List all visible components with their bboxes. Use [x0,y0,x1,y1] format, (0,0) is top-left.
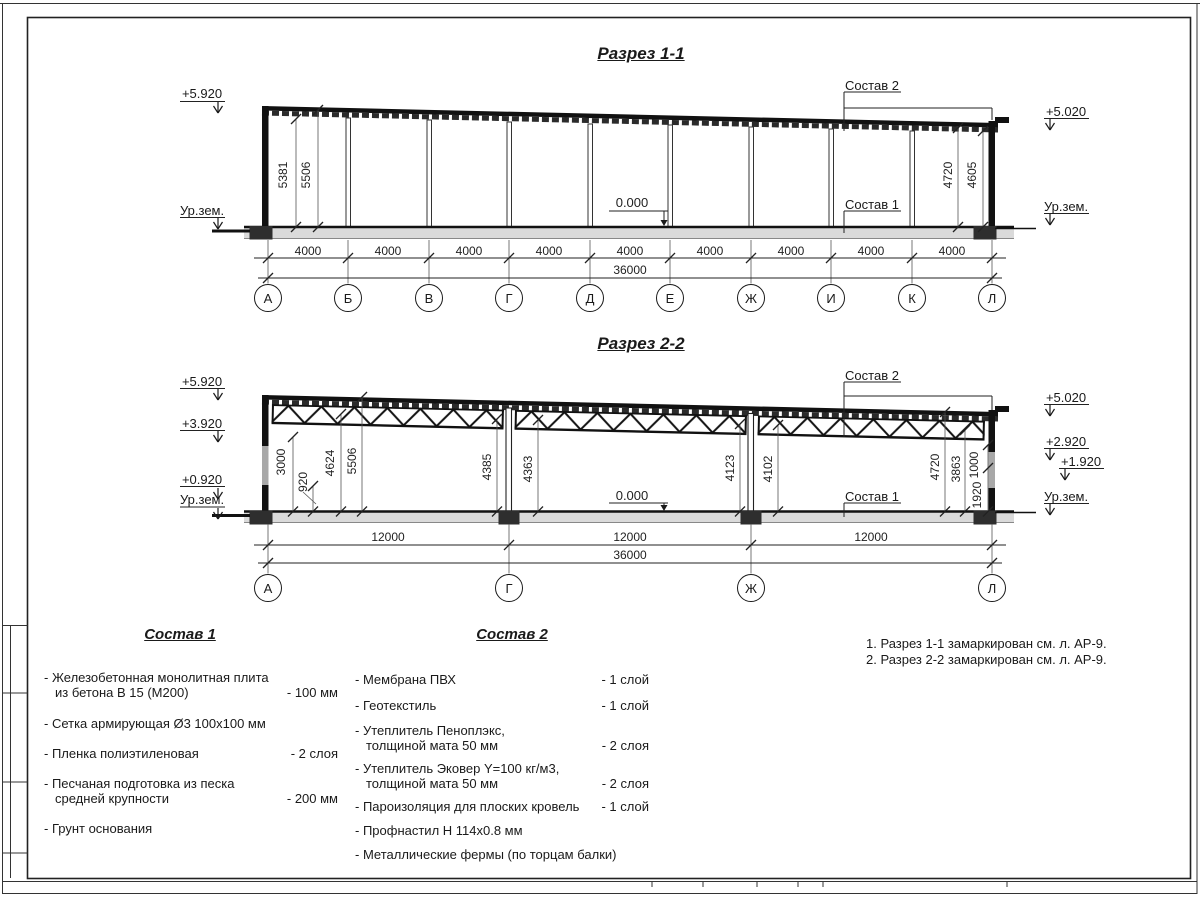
drawing-sheet: Разрез 1-1 +5.920 Ур.зем. +5.020 Ур.зем.… [0,0,1200,900]
vertical-dim: 4385 [480,427,494,507]
bay-dim: 4000 [439,244,499,258]
zero-level-mark: 0.000 [602,195,662,210]
bay-dim: 4000 [841,244,901,258]
vertical-dim: 5381 [276,135,290,215]
vertical-dim: 4720 [928,427,942,507]
axis-bubble: Е [656,284,684,312]
axis-bubble: Ж [737,574,765,602]
item-qty: - 1 слой [601,799,649,814]
item-text: - Утеплитель Пеноплэкс, толщиной мата 50… [355,723,505,753]
item-text: - Грунт основания [44,821,152,836]
elevation-mark: +5.920 [180,86,224,101]
item-text: - Железобетонная монолитная плита из бет… [44,670,269,700]
truss-1 [272,404,504,428]
item-text: - Пленка полиэтиленовая [44,746,199,761]
elevation-mark: +0.920 [180,472,224,487]
composition1-item: - Пленка полиэтиленовая - 2 слоя [44,746,338,761]
composition1-item: - Грунт основания [44,821,338,836]
item-qty: - 2 слоя [602,738,649,753]
bay-dim: 4000 [519,244,579,258]
callout-sostav1: Состав 1 [837,197,907,212]
composition2-item: - Геотекстиль - 1 слой [355,698,649,713]
composition2-item: - Утеплитель Пеноплэкс, толщиной мата 50… [355,723,649,753]
vertical-dim: 4624 [323,423,337,503]
composition1-item: - Песчаная подготовка из песка средней к… [44,776,338,806]
bay-dim: 12000 [590,530,670,544]
vertical-dim: 3863 [949,429,963,509]
composition1-item: - Железобетонная монолитная плита из бет… [44,670,338,700]
item-text: - Песчаная подготовка из песка средней к… [44,776,234,806]
callout-sostav2: Состав 2 [837,78,907,93]
axis-bubble: А [254,284,282,312]
bay-dim: 4000 [922,244,982,258]
axis-bubble: Г [495,574,523,602]
note-line: 1. Разрез 1-1 замаркирован см. л. АР-9. [866,636,1107,652]
vertical-dim: 4363 [521,429,535,509]
axis-bubble: А [254,574,282,602]
note-line: 2. Разрез 2-2 замаркирован см. л. АР-9. [866,652,1107,668]
vertical-dim: 4720 [941,135,955,215]
vertical-dim: 3000 [274,422,288,502]
vertical-dim: 4123 [723,428,737,508]
bay-dim: 4000 [680,244,740,258]
section2-title: Разрез 2-2 [561,334,721,354]
total-dim: 36000 [600,263,660,277]
callout-sostav1: Состав 1 [837,489,907,504]
item-text: - Сетка армирующая Ø3 100x100 мм [44,716,266,731]
vertical-dim: 920 [296,442,310,522]
axis-bubble: Л [978,284,1006,312]
axis-bubble: Г [495,284,523,312]
item-text: - Мембрана ПВХ [355,672,456,687]
bay-dim: 4000 [761,244,821,258]
composition2-item: - Пароизоляция для плоских кровель - 1 с… [355,799,649,814]
ground-level-mark: Ур.зем. [180,203,224,218]
vertical-dim: 4102 [761,429,775,509]
elevation-mark: +5.020 [1044,390,1088,405]
callout-sostav2: Состав 2 [837,368,907,383]
ground-level-mark: Ур.зем. [1044,199,1088,214]
item-text: - Геотекстиль [355,698,439,713]
vertical-dim: 4605 [965,135,979,215]
axis-bubble: И [817,284,845,312]
elevation-mark: +5.920 [180,374,224,389]
item-qty: - 2 слоя [291,746,338,761]
vertical-dim: 5506 [299,135,313,215]
vertical-dim: 1920 [970,455,984,535]
composition2-item: - Мембрана ПВХ - 1 слой [355,672,649,687]
axis-bubble: Ж [737,284,765,312]
item-text: - Металлические фермы (по торцам балки) [355,847,616,862]
elevation-mark: +1.920 [1059,454,1103,469]
item-text: - Пароизоляция для плоских кровель [355,799,579,814]
axis-bubble: В [415,284,443,312]
item-qty: - 2 слоя [602,776,649,791]
composition1-title: Состав 1 [115,626,245,643]
section1-title: Разрез 1-1 [561,44,721,64]
elevation-mark: +3.920 [180,416,224,431]
axis-bubble: К [898,284,926,312]
composition2-item: - Профнастил Н 114х0.8 мм [355,823,649,838]
item-qty: - 200 мм [287,791,338,806]
composition2-item: - Металлические фермы (по торцам балки) [355,847,649,862]
axis-bubble: Л [978,574,1006,602]
bay-dim: 4000 [278,244,338,258]
total-dim: 36000 [600,548,660,562]
bay-dim: 12000 [831,530,911,544]
item-qty: - 1 слой [601,672,649,687]
vertical-dim: 5506 [345,421,359,501]
item-qty: - 100 мм [287,685,338,700]
elevation-mark: +5.020 [1044,104,1088,119]
item-text: - Утеплитель Эковер Y=100 кг/м3, толщино… [355,761,559,791]
bay-dim: 12000 [348,530,428,544]
ground-level-mark: Ур.зем. [180,492,224,507]
sheet-notes: 1. Разрез 1-1 замаркирован см. л. АР-9. … [866,636,1107,667]
axis-bubble: Д [576,284,604,312]
item-text: - Профнастил Н 114х0.8 мм [355,823,523,838]
composition2-item: - Утеплитель Эковер Y=100 кг/м3, толщино… [355,761,649,791]
composition2-title: Состав 2 [447,626,577,643]
axis-bubble: Б [334,284,362,312]
bay-dim: 4000 [358,244,418,258]
ground-level-mark: Ур.зем. [1044,489,1088,504]
zero-level-mark: 0.000 [602,488,662,503]
elevation-mark: +2.920 [1044,434,1088,449]
section1-structure [212,106,1036,240]
item-qty: - 1 слой [601,698,649,713]
bay-dim: 4000 [600,244,660,258]
composition1-item: - Сетка армирующая Ø3 100x100 мм [44,716,338,731]
